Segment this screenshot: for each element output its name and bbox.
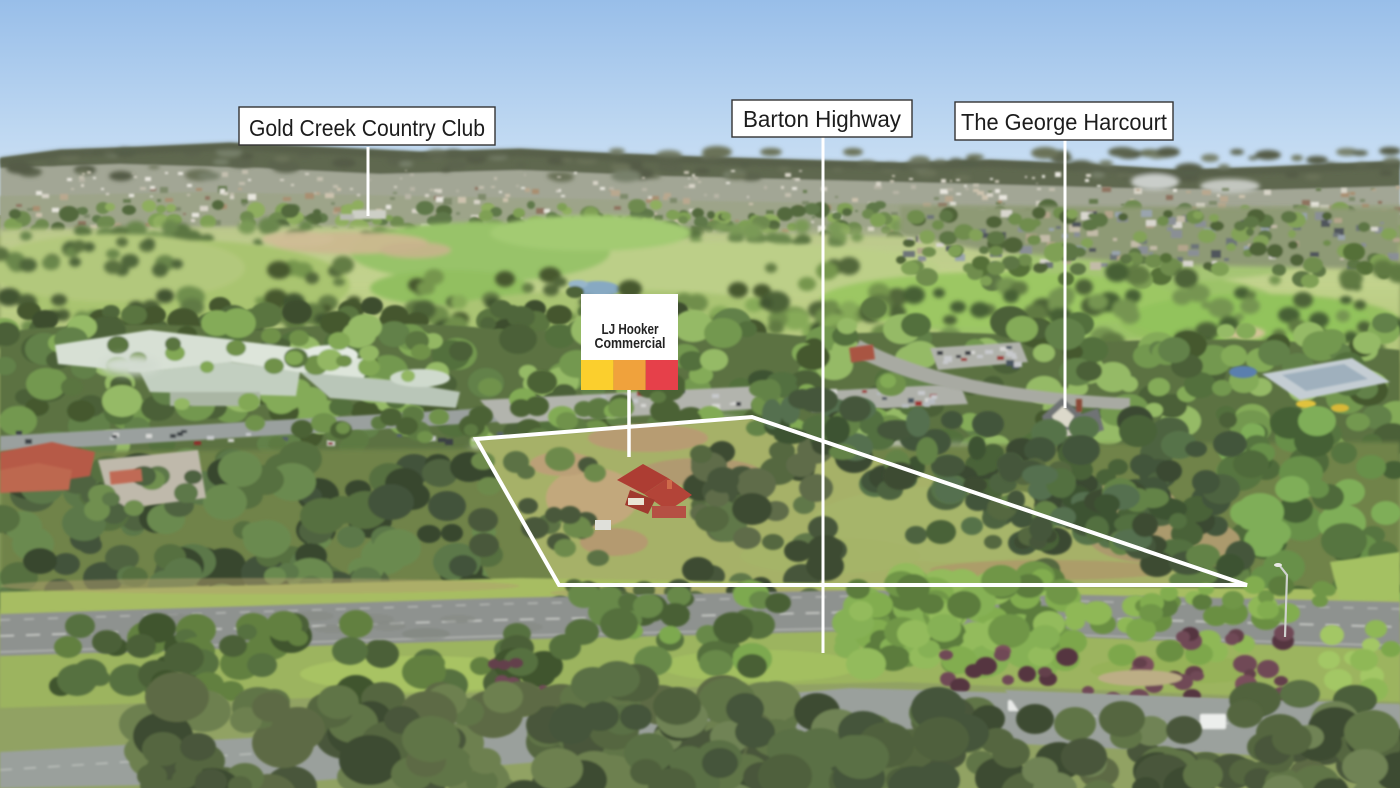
svg-text:Barton Highway: Barton Highway [743,106,901,132]
svg-text:Commercial: Commercial [595,335,666,352]
svg-text:The George Harcourt: The George Harcourt [961,109,1168,135]
svg-text:Gold Creek Country Club: Gold Creek Country Club [249,115,485,141]
